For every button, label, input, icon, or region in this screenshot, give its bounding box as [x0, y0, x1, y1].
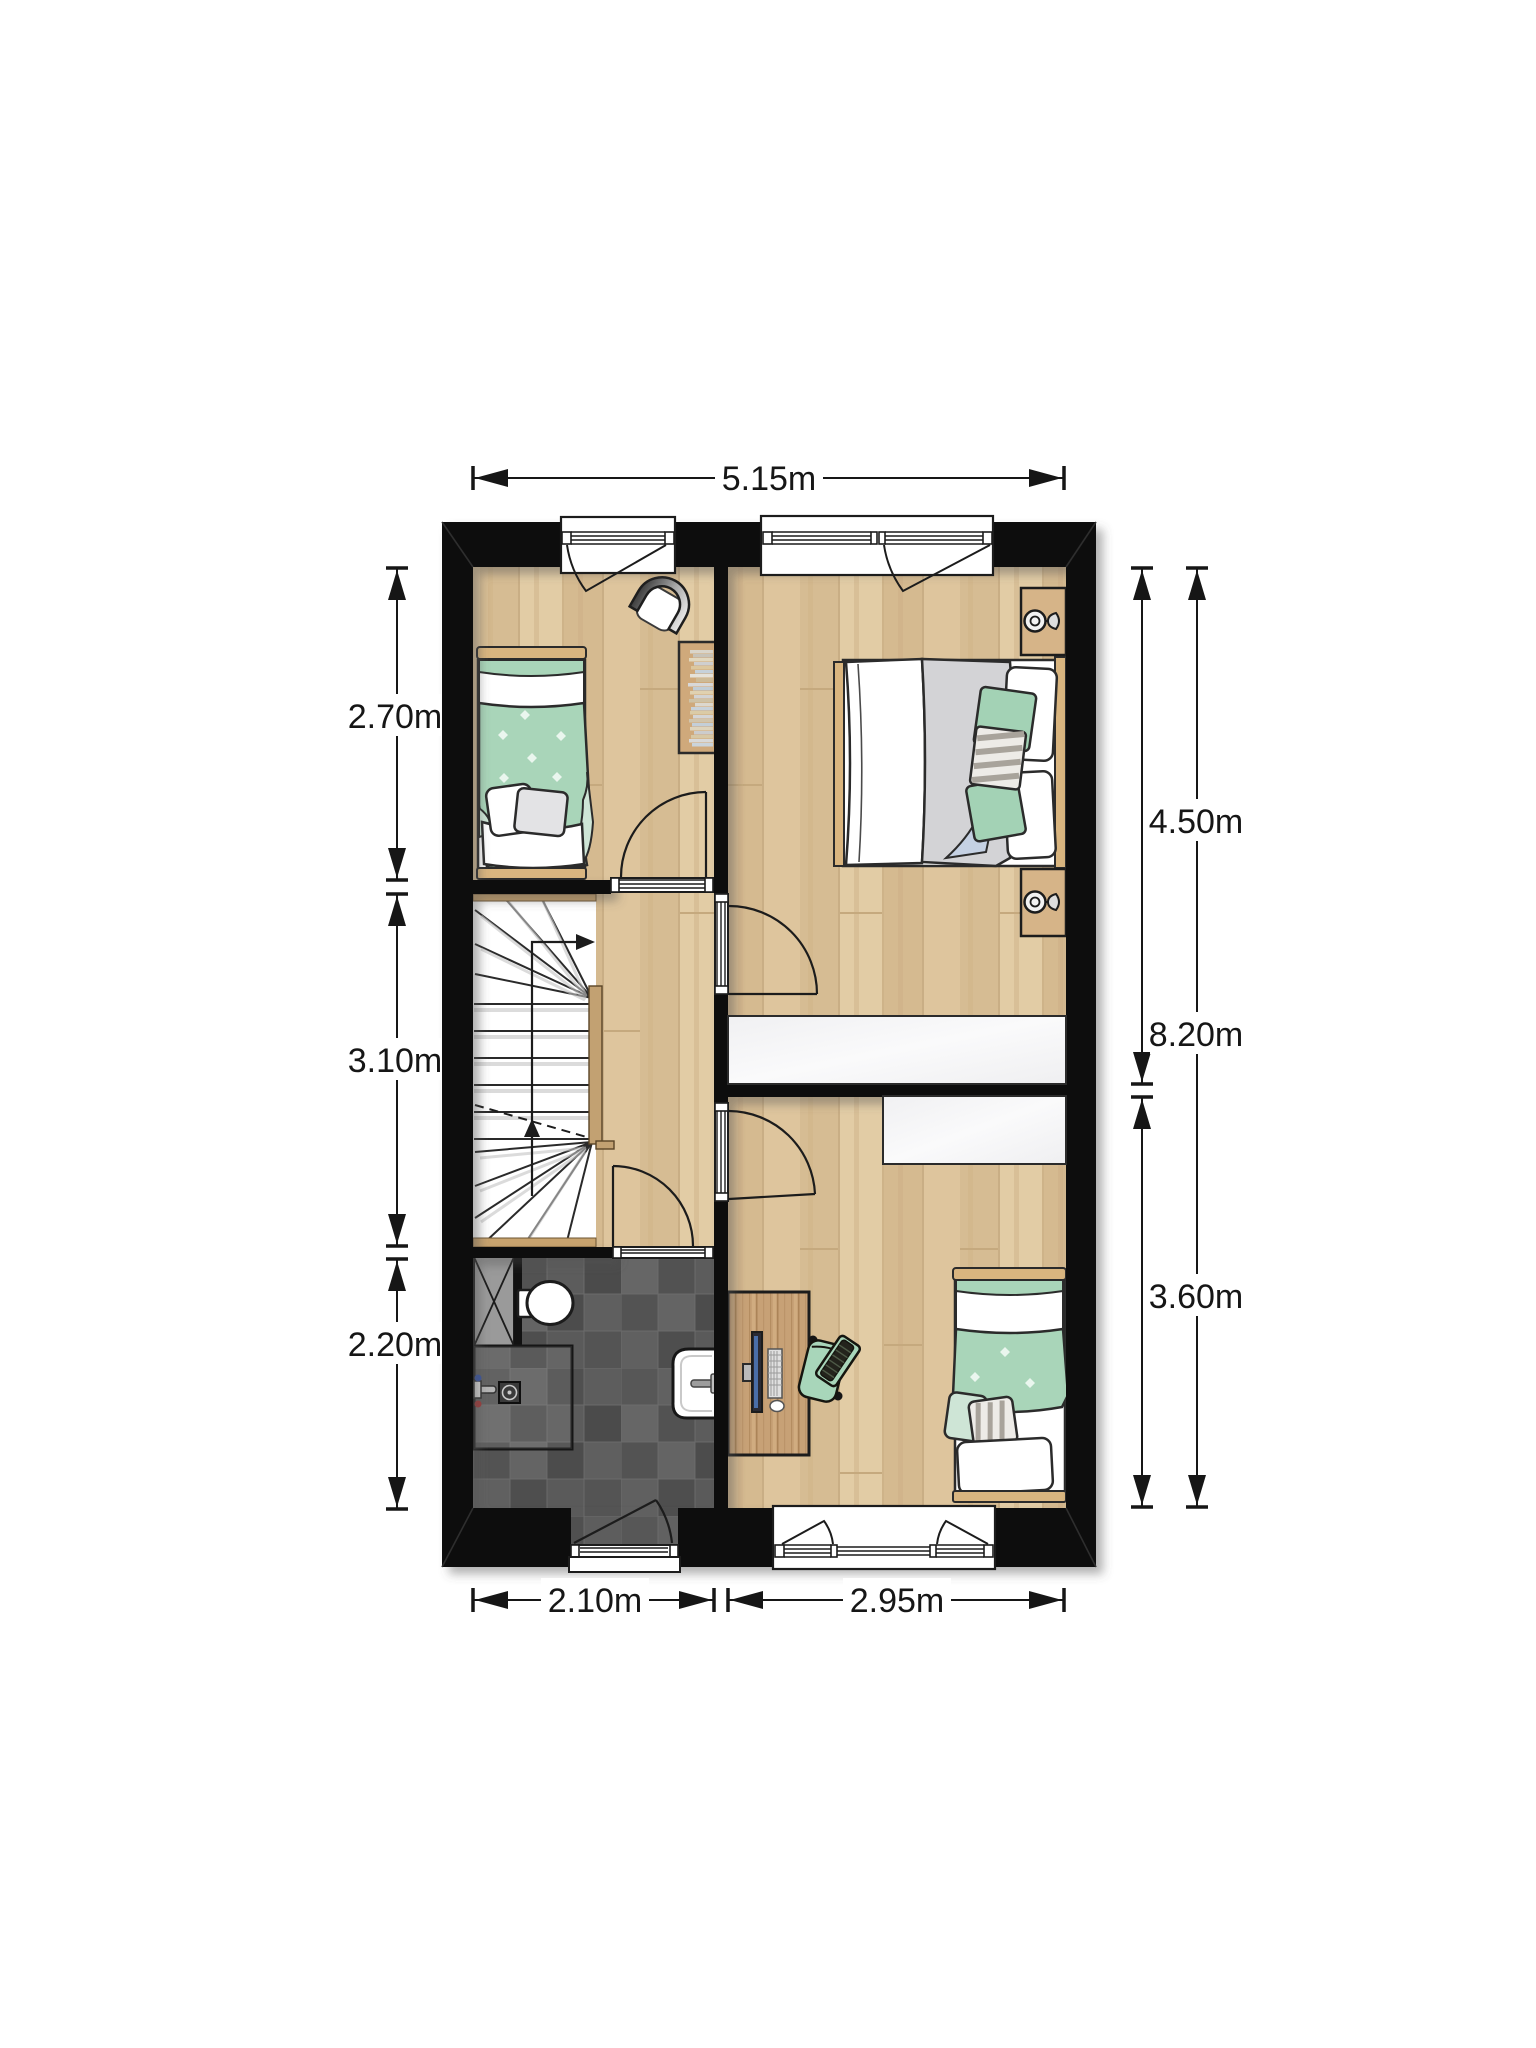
svg-text:2.20m: 2.20m	[348, 1326, 443, 1364]
svg-text:2.70m: 2.70m	[348, 698, 443, 736]
svg-text:2.95m: 2.95m	[850, 1582, 945, 1620]
svg-text:5.15m: 5.15m	[722, 460, 817, 498]
svg-text:2.10m: 2.10m	[548, 1582, 643, 1620]
svg-text:3.60m: 3.60m	[1149, 1278, 1244, 1316]
svg-text:8.20m: 8.20m	[1149, 1016, 1244, 1054]
svg-text:4.50m: 4.50m	[1149, 803, 1244, 841]
svg-text:3.10m: 3.10m	[348, 1042, 443, 1080]
